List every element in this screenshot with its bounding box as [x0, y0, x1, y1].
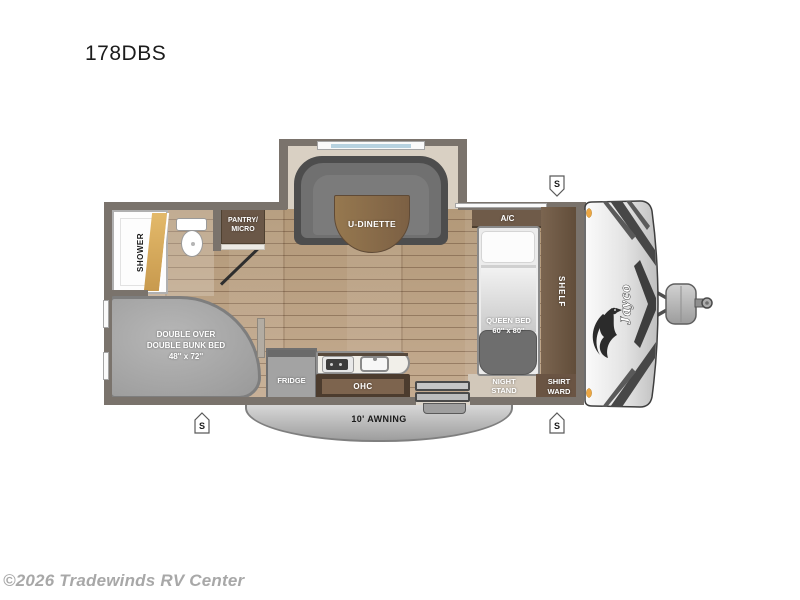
page-title: 178DBS: [85, 42, 166, 66]
queen-bed-label-line1: QUEEN BED: [486, 316, 531, 326]
queen-bed-label-line2: 60'' x 80'': [492, 326, 524, 336]
stove: [322, 356, 354, 373]
toilet-drain: [191, 242, 195, 246]
entry-step-2: [415, 392, 470, 402]
pantry-micro-cabinet: PANTRY/ MICRO: [221, 206, 265, 244]
stove-knob-2: [339, 363, 342, 366]
sink-faucet: [373, 357, 377, 361]
bunk-label-line1: DOUBLE OVER: [157, 329, 216, 340]
shirt-ward-label-line1: SHIRT: [548, 377, 571, 387]
slideout-window-glass: [331, 144, 411, 148]
bed-pillow: [481, 231, 535, 263]
front-cap-and-hitch: Jayco: [578, 196, 714, 412]
marker-light-bottom: [586, 389, 591, 398]
bunk-label-line3: 48'' x 72'': [169, 351, 203, 362]
bottom-wall-right: [470, 397, 582, 405]
jayco-logo-text: Jayco: [618, 284, 634, 326]
stabilizer-letter: S: [554, 179, 560, 189]
overhead-cabinet-panel: OHC: [322, 379, 404, 394]
bird-eye: [614, 309, 616, 311]
ohc-label: OHC: [353, 382, 372, 391]
stove-knob-1: [330, 363, 333, 366]
stabilizer-marker-bottom-left: S: [194, 412, 210, 434]
fridge: FRIDGE: [266, 348, 317, 401]
entry-step-1: [415, 381, 470, 391]
overhead-cabinet: OHC: [316, 374, 410, 399]
fridge-label: FRIDGE: [277, 376, 305, 385]
sink: [360, 356, 389, 372]
awning-label: 10' AWNING: [247, 414, 511, 424]
shower-label: SHOWER: [136, 233, 145, 272]
stabilizer-marker-bottom-right: S: [549, 412, 565, 434]
bunk-label-line2: DOUBLE BUNK BED: [147, 340, 225, 351]
toilet-bowl: [181, 230, 203, 257]
bottom-wall-left: [104, 397, 416, 405]
marker-light-top: [586, 209, 591, 218]
hitch-ball-center: [705, 301, 709, 305]
awning: 10' AWNING: [245, 402, 513, 442]
slideout-right-wall: [458, 139, 467, 209]
shirt-ward-label-line2: WARD: [548, 387, 571, 397]
slideout-left-wall: [279, 139, 288, 209]
pantry-label-line2: MICRO: [231, 225, 254, 234]
slideout-window: [317, 141, 425, 150]
stabilizer-marker-top-right: S: [549, 175, 565, 197]
top-right-window: [455, 203, 547, 208]
pantry-label-line1: PANTRY/: [228, 216, 258, 225]
left-wall-window-2: [103, 352, 109, 380]
fridge-top: [268, 350, 315, 357]
night-stand-label-line2: STAND: [491, 386, 516, 396]
stabilizer-letter: S: [554, 421, 560, 431]
stabilizer-letter: S: [199, 421, 205, 431]
top-wall-left: [104, 202, 287, 210]
entry-step-3: [423, 403, 466, 414]
kitchen-wall-stub: [257, 318, 265, 358]
left-wall-window-1: [103, 300, 109, 328]
shelf-label: SHELF: [557, 276, 566, 307]
dealer-watermark: ©2026 Tradewinds RV Center: [3, 571, 244, 591]
ac-label: A/C: [501, 214, 515, 223]
pantry-counter-lip: [221, 244, 265, 250]
u-dinette-label: U-DINETTE: [348, 219, 396, 229]
floorplan-image: 178DBS SHOWER PANTRY/ MICRO U-DINETTE A/…: [0, 0, 800, 600]
queen-bed: QUEEN BED 60'' x 80'': [477, 226, 540, 376]
night-stand-label-line1: NIGHT: [492, 377, 515, 387]
